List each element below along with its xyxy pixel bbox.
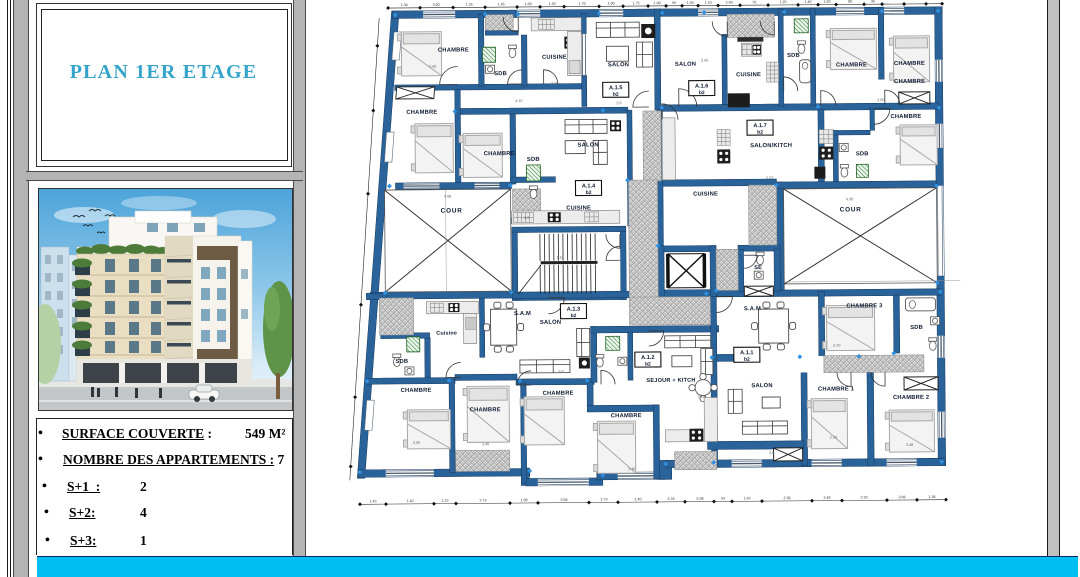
svg-text:1.23: 1.23 [441, 499, 448, 503]
svg-text:CHAMBRE: CHAMBRE [894, 61, 925, 67]
svg-text:b2: b2 [757, 130, 763, 136]
svg-text:SALON: SALON [751, 383, 772, 389]
svg-text:1.35: 1.35 [466, 3, 473, 7]
svg-text:2.40: 2.40 [726, 1, 733, 5]
svg-text:1.75: 1.75 [633, 1, 640, 5]
svg-text:1.25: 1.25 [780, 0, 787, 4]
svg-text:b2: b2 [571, 313, 577, 319]
svg-text:S.A.M: S.A.M [744, 306, 761, 312]
svg-text:SALON: SALON [675, 62, 696, 68]
svg-text:3.29: 3.29 [833, 344, 840, 348]
svg-text:2.38: 2.38 [783, 496, 790, 500]
svg-text:1.40: 1.40 [805, 0, 812, 4]
svg-text:b2: b2 [645, 361, 651, 367]
svg-text:1.50: 1.50 [824, 0, 831, 4]
svg-text:A.1.6: A.1.6 [695, 84, 708, 90]
svg-text:SE: SE [754, 265, 762, 271]
svg-text:CHAMBRE: CHAMBRE [611, 413, 642, 419]
svg-text:1.40: 1.40 [406, 499, 413, 503]
svg-text:SDB: SDB [494, 71, 507, 77]
svg-text:95: 95 [672, 1, 676, 5]
svg-text:Cuisine: Cuisine [436, 331, 457, 337]
svg-text:CHAMBRE: CHAMBRE [470, 407, 501, 413]
svg-text:3.48: 3.48 [482, 442, 489, 446]
svg-text:CUISINE: CUISINE [566, 205, 591, 211]
svg-text:1.20: 1.20 [549, 2, 556, 6]
svg-text:COUR: COUR [840, 206, 862, 213]
svg-text:1.10: 1.10 [556, 256, 563, 260]
svg-text:CHAMBRE: CHAMBRE [401, 388, 432, 394]
svg-text:2.73: 2.73 [479, 498, 486, 502]
svg-text:3.00: 3.00 [877, 98, 884, 102]
svg-text:3.48: 3.48 [906, 443, 913, 447]
svg-text:b2: b2 [744, 357, 750, 363]
svg-text:SALON: SALON [608, 62, 629, 68]
svg-text:CHAMBRE: CHAMBRE [894, 79, 925, 85]
svg-text:2.10: 2.10 [551, 82, 558, 86]
svg-text:2.33: 2.33 [830, 436, 837, 440]
svg-text:CHAMBRE 3: CHAMBRE 3 [846, 303, 883, 309]
svg-text:3.45: 3.45 [701, 59, 708, 63]
svg-text:SALON: SALON [540, 320, 561, 326]
svg-text:SDB: SDB [856, 151, 869, 157]
svg-text:93: 93 [721, 497, 725, 501]
svg-text:4.98: 4.98 [444, 195, 451, 199]
svg-text:CHAMBRE: CHAMBRE [543, 391, 574, 397]
svg-text:CHAMBRE: CHAMBRE [484, 151, 515, 157]
svg-text:SALON: SALON [578, 142, 599, 148]
svg-text:4.10: 4.10 [515, 99, 522, 103]
svg-text:1.50: 1.50 [687, 1, 694, 5]
svg-text:CUISINE: CUISINE [542, 55, 567, 61]
svg-text:3.68: 3.68 [560, 498, 567, 502]
svg-text:SDB: SDB [910, 325, 923, 331]
svg-text:1.40: 1.40 [634, 497, 641, 501]
svg-text:3.8: 3.8 [558, 370, 563, 374]
svg-text:A.1.4: A.1.4 [582, 183, 596, 189]
svg-text:2.73: 2.73 [600, 498, 607, 502]
svg-text:SDB: SDB [787, 53, 800, 59]
svg-text:SDB: SDB [527, 157, 540, 163]
svg-text:CHAMBRE: CHAMBRE [836, 62, 867, 68]
svg-text:CHAMBRE: CHAMBRE [890, 114, 921, 120]
svg-text:A.1.1: A.1.1 [740, 350, 753, 356]
svg-text:3.00: 3.00 [433, 3, 440, 7]
svg-text:A.1.2: A.1.2 [641, 355, 654, 361]
svg-text:CHAMBRE 2: CHAMBRE 2 [893, 395, 929, 401]
svg-text:SALON/KITCH: SALON/KITCH [750, 143, 792, 149]
svg-text:3.68: 3.68 [898, 495, 905, 499]
svg-text:3.00: 3.00 [413, 441, 420, 445]
svg-text:SEJOUR + KITCH: SEJOUR + KITCH [646, 378, 695, 384]
svg-text:95: 95 [871, 0, 875, 3]
svg-text:80: 80 [848, 0, 852, 4]
svg-text:CHAMBRE: CHAMBRE [406, 110, 437, 116]
svg-text:1.10: 1.10 [705, 1, 712, 5]
svg-text:1.6: 1.6 [524, 216, 529, 220]
svg-text:CHAMBRE 1: CHAMBRE 1 [818, 386, 855, 392]
svg-text:5.98: 5.98 [696, 497, 703, 501]
svg-text:1.00: 1.00 [608, 1, 615, 5]
svg-text:SDB: SDB [395, 359, 408, 365]
svg-text:1.38: 1.38 [928, 495, 935, 499]
svg-text:CUISINE: CUISINE [736, 72, 761, 78]
svg-text:4.98: 4.98 [846, 197, 853, 201]
svg-text:1.00: 1.00 [525, 2, 532, 6]
svg-text:b2: b2 [699, 90, 705, 96]
svg-text:3.48: 3.48 [823, 496, 830, 500]
svg-text:b2: b2 [613, 92, 619, 98]
svg-text:1.93: 1.93 [743, 496, 750, 500]
svg-text:COUR: COUR [441, 207, 463, 214]
svg-text:3.8: 3.8 [769, 451, 774, 455]
svg-text:70: 70 [752, 0, 756, 4]
svg-text:2.40: 2.40 [429, 65, 436, 69]
svg-text:1.00: 1.00 [654, 1, 661, 5]
svg-text:A.1.5: A.1.5 [609, 85, 622, 91]
svg-text:1.43: 1.43 [369, 499, 376, 503]
svg-text:3.28: 3.28 [697, 395, 704, 399]
svg-text:b2: b2 [586, 190, 592, 196]
svg-text:1.98: 1.98 [520, 498, 527, 502]
svg-text:1.45: 1.45 [498, 2, 505, 6]
svg-text:A.1.7: A.1.7 [753, 123, 766, 129]
svg-text:CHAMBRE: CHAMBRE [438, 47, 469, 53]
svg-text:1.30: 1.30 [401, 3, 408, 7]
svg-text:1.70: 1.70 [579, 2, 586, 6]
svg-text:3.23: 3.23 [766, 176, 773, 180]
svg-text:3.8: 3.8 [616, 101, 621, 105]
svg-text:1.40: 1.40 [628, 467, 635, 471]
svg-text:A.1.3: A.1.3 [567, 307, 580, 313]
svg-text:3.78: 3.78 [667, 497, 674, 501]
svg-text:S.A.M: S.A.M [514, 311, 531, 317]
svg-text:2.33: 2.33 [860, 495, 867, 499]
svg-text:CUISINE: CUISINE [693, 191, 718, 197]
